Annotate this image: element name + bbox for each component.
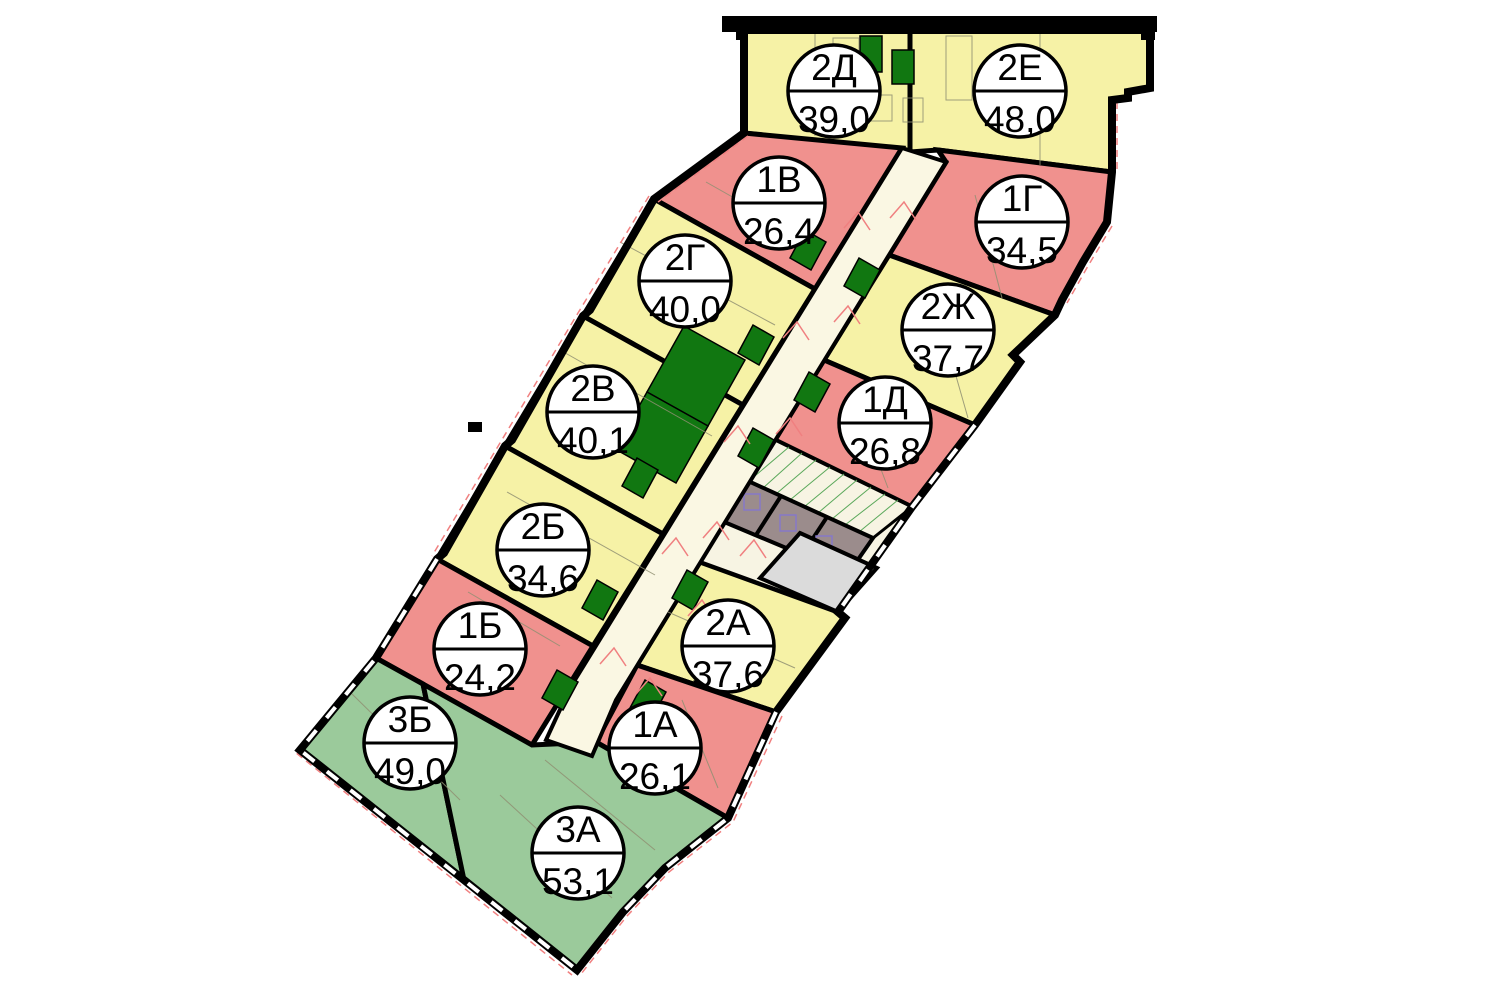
apartment-3a-badge[interactable]: 3А 53,1: [532, 807, 624, 902]
svg-text:2В: 2В: [570, 368, 615, 409]
svg-text:2Ж: 2Ж: [921, 286, 976, 327]
svg-text:1Б: 1Б: [458, 605, 503, 646]
svg-text:39,0: 39,0: [798, 99, 870, 140]
svg-text:2А: 2А: [705, 602, 751, 643]
apartment-1g-badge[interactable]: 1Г 34,5: [976, 176, 1068, 271]
svg-text:2Г: 2Г: [665, 237, 706, 278]
svg-text:53,1: 53,1: [542, 861, 614, 902]
svg-text:26,1: 26,1: [619, 756, 691, 797]
svg-text:48,0: 48,0: [984, 99, 1056, 140]
apartment-1b-badge[interactable]: 1Б 24,2: [434, 603, 526, 698]
floor-plan-page: 2Д 39,0 2Е 48,0 1В 26,4 1Г 34,5 2Г 40,0: [0, 0, 1500, 1000]
apartment-1v-badge[interactable]: 1В 26,4: [733, 157, 825, 252]
svg-text:26,4: 26,4: [743, 211, 815, 252]
svg-text:40,1: 40,1: [557, 420, 629, 461]
svg-text:26,8: 26,8: [849, 431, 921, 472]
svg-text:37,6: 37,6: [692, 654, 764, 695]
apartment-1d-badge[interactable]: 1Д 26,8: [839, 377, 931, 472]
apartment-3b-badge[interactable]: 3Б 49,0: [364, 697, 456, 792]
svg-text:40,0: 40,0: [649, 289, 721, 330]
apartment-2zh-badge[interactable]: 2Ж 37,7: [902, 284, 994, 379]
apartment-2e-badge[interactable]: 2Е 48,0: [974, 45, 1066, 140]
apartment-2a-badge[interactable]: 2А 37,6: [682, 600, 774, 695]
apartment-2g-badge[interactable]: 2Г 40,0: [639, 235, 731, 330]
svg-text:1Д: 1Д: [862, 379, 908, 420]
svg-text:2Е: 2Е: [997, 47, 1042, 88]
svg-text:1А: 1А: [632, 704, 678, 745]
apartment-2b-badge[interactable]: 2Б 34,6: [497, 504, 589, 599]
wall-stub: [468, 422, 482, 432]
svg-text:49,0: 49,0: [374, 751, 446, 792]
svg-text:2Б: 2Б: [521, 506, 566, 547]
floor-plan-canvas: 2Д 39,0 2Е 48,0 1В 26,4 1Г 34,5 2Г 40,0: [0, 0, 1500, 1000]
svg-text:1В: 1В: [756, 159, 801, 200]
svg-text:24,2: 24,2: [444, 657, 516, 698]
apartment-1a-badge[interactable]: 1А 26,1: [609, 702, 701, 797]
apartment-2d-badge[interactable]: 2Д 39,0: [788, 45, 880, 140]
apartment-2v-badge[interactable]: 2В 40,1: [547, 366, 639, 461]
svg-text:3Б: 3Б: [388, 699, 433, 740]
svg-text:2Д: 2Д: [811, 47, 857, 88]
svg-text:3А: 3А: [555, 809, 601, 850]
svg-text:37,7: 37,7: [912, 338, 984, 379]
svg-text:34,5: 34,5: [986, 230, 1058, 271]
svg-text:34,6: 34,6: [507, 558, 579, 599]
svg-text:1Г: 1Г: [1002, 178, 1043, 219]
